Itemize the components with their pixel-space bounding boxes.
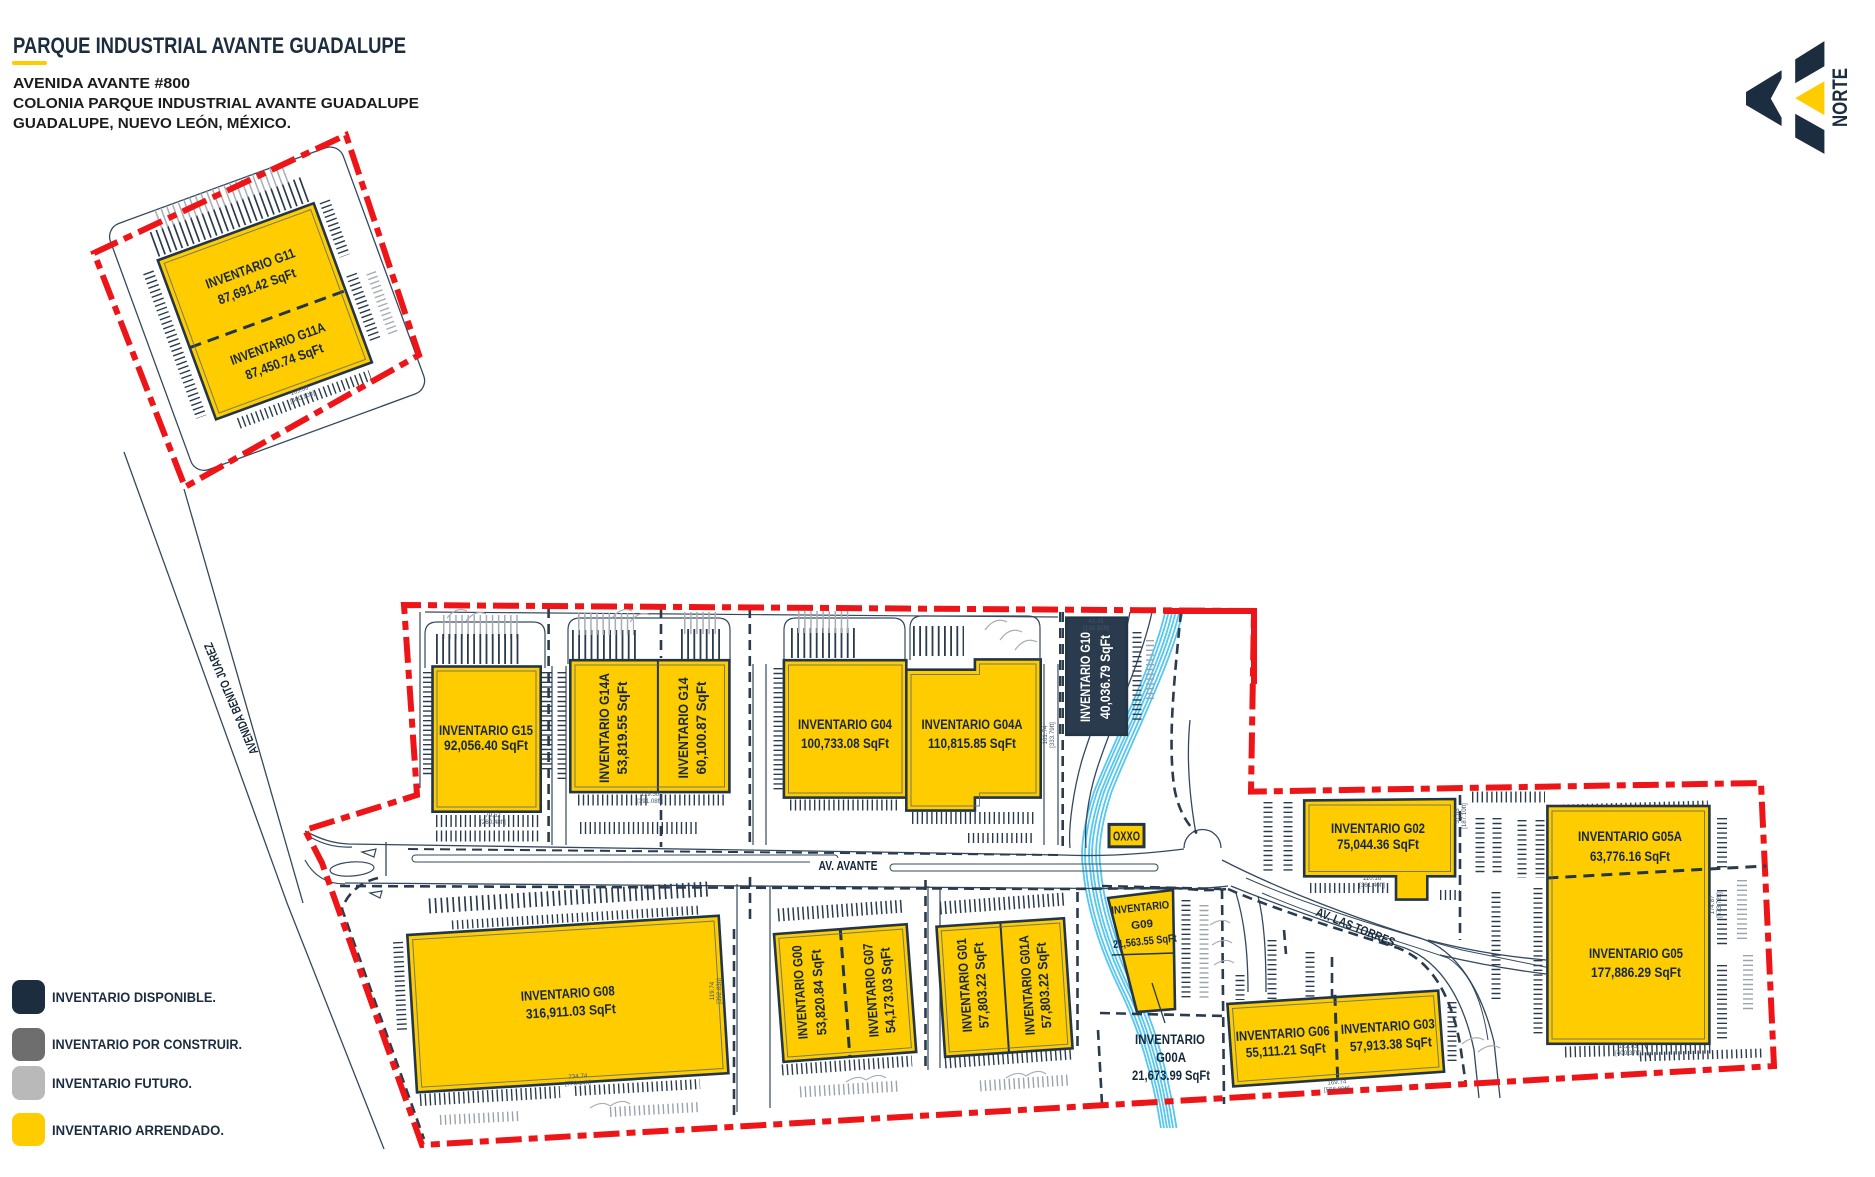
svg-text:122.03: 122.03 — [1619, 1043, 1638, 1050]
svg-text:[138.82ft]: [138.82ft] — [1083, 625, 1109, 632]
svg-text:[400.37ft]: [400.37ft] — [1615, 1050, 1641, 1057]
svg-text:INVENTARIO ARRENDADO.: INVENTARIO ARRENDADO. — [52, 1123, 224, 1138]
svg-text:174.87: 174.87 — [1709, 895, 1716, 914]
svg-text:INVENTARIO DISPONIBLE.: INVENTARIO DISPONIBLE. — [52, 990, 216, 1005]
svg-text:[187.10ft]: [187.10ft] — [1461, 803, 1468, 829]
svg-text:INVENTARIO G05A: INVENTARIO G05A — [1578, 829, 1682, 844]
svg-text:[333.79ft]: [333.79ft] — [1049, 722, 1056, 748]
svg-text:101.74: 101.74 — [1042, 725, 1049, 744]
svg-text:[391.08ft]: [391.08ft] — [637, 798, 663, 805]
svg-text:53,819.55 SqFt: 53,819.55 SqFt — [615, 681, 630, 774]
svg-text:G09: G09 — [1131, 918, 1154, 932]
svg-text:100,733.08 SqFt: 100,733.08 SqFt — [801, 736, 889, 751]
svg-text:INVENTARIO G10: INVENTARIO G10 — [1078, 632, 1093, 722]
svg-text:COLONIA PARQUE INDUSTRIAL AVAN: COLONIA PARQUE INDUSTRIAL AVANTE GUADALU… — [13, 96, 419, 112]
svg-text:INVENTARIO G04: INVENTARIO G04 — [798, 717, 892, 732]
svg-text:[361.40ft]: [361.40ft] — [1359, 882, 1385, 889]
svg-text:PARQUE INDUSTRIAL AVANTE GUADA: PARQUE INDUSTRIAL AVANTE GUADALUPE — [13, 33, 406, 58]
svg-text:92,056.40 SqFt: 92,056.40 SqFt — [444, 738, 528, 753]
svg-text:INVENTARIO POR CONSTRUIR.: INVENTARIO POR CONSTRUIR. — [52, 1037, 242, 1052]
svg-text:[573.72ft]: [573.72ft] — [1716, 892, 1723, 918]
svg-text:G00A: G00A — [1156, 1050, 1186, 1065]
svg-text:INVENTARIO G05: INVENTARIO G05 — [1589, 946, 1683, 961]
svg-text:42.31: 42.31 — [1088, 618, 1104, 625]
svg-text:177,886.29 SqFt: 177,886.29 SqFt — [1591, 965, 1681, 980]
svg-text:AV. AVANTE: AV. AVANTE — [819, 859, 878, 873]
svg-text:AVENIDA AVANTE #800: AVENIDA AVANTE #800 — [13, 76, 190, 92]
svg-text:110,815.85 SqFt: 110,815.85 SqFt — [928, 736, 1016, 751]
svg-text:57.03: 57.03 — [1454, 808, 1461, 824]
svg-text:INVENTARIO G15: INVENTARIO G15 — [439, 723, 533, 738]
svg-text:INVENTARIO FUTURO.: INVENTARIO FUTURO. — [52, 1076, 192, 1091]
svg-text:63,776.16 SqFt: 63,776.16 SqFt — [1590, 849, 1670, 864]
svg-text:40,036.79 SqFt: 40,036.79 SqFt — [1098, 635, 1113, 719]
svg-text:INVENTARIO G14: INVENTARIO G14 — [676, 677, 691, 778]
svg-text:110.16: 110.16 — [1363, 875, 1382, 882]
svg-text:75,044.36 SqFt: 75,044.36 SqFt — [1337, 837, 1419, 852]
svg-text:[392.83ft]: [392.83ft] — [716, 978, 723, 1004]
svg-text:INVENTARIO: INVENTARIO — [1135, 1032, 1205, 1047]
svg-text:[260.48ft]: [260.48ft] — [480, 819, 506, 826]
svg-text:INVENTARIO G04A: INVENTARIO G04A — [922, 717, 1023, 732]
svg-text:GUADALUPE, NUEVO LEÓN, MÉXICO.: GUADALUPE, NUEVO LEÓN, MÉXICO. — [13, 114, 291, 132]
svg-text:119.50: 119.50 — [641, 791, 660, 798]
svg-text:21,673.99 SqFt: 21,673.99 SqFt — [1132, 1068, 1210, 1083]
svg-text:INVENTARIO G14A: INVENTARIO G14A — [597, 673, 612, 783]
svg-text:INVENTARIO G02: INVENTARIO G02 — [1331, 821, 1425, 836]
svg-text:79.52: 79.52 — [485, 812, 501, 819]
svg-text:119.74: 119.74 — [709, 981, 716, 1000]
svg-text:OXXO: OXXO — [1113, 830, 1140, 844]
svg-text:60,100.87 SqFt: 60,100.87 SqFt — [694, 681, 709, 774]
svg-text:NORTE: NORTE — [1829, 68, 1852, 127]
